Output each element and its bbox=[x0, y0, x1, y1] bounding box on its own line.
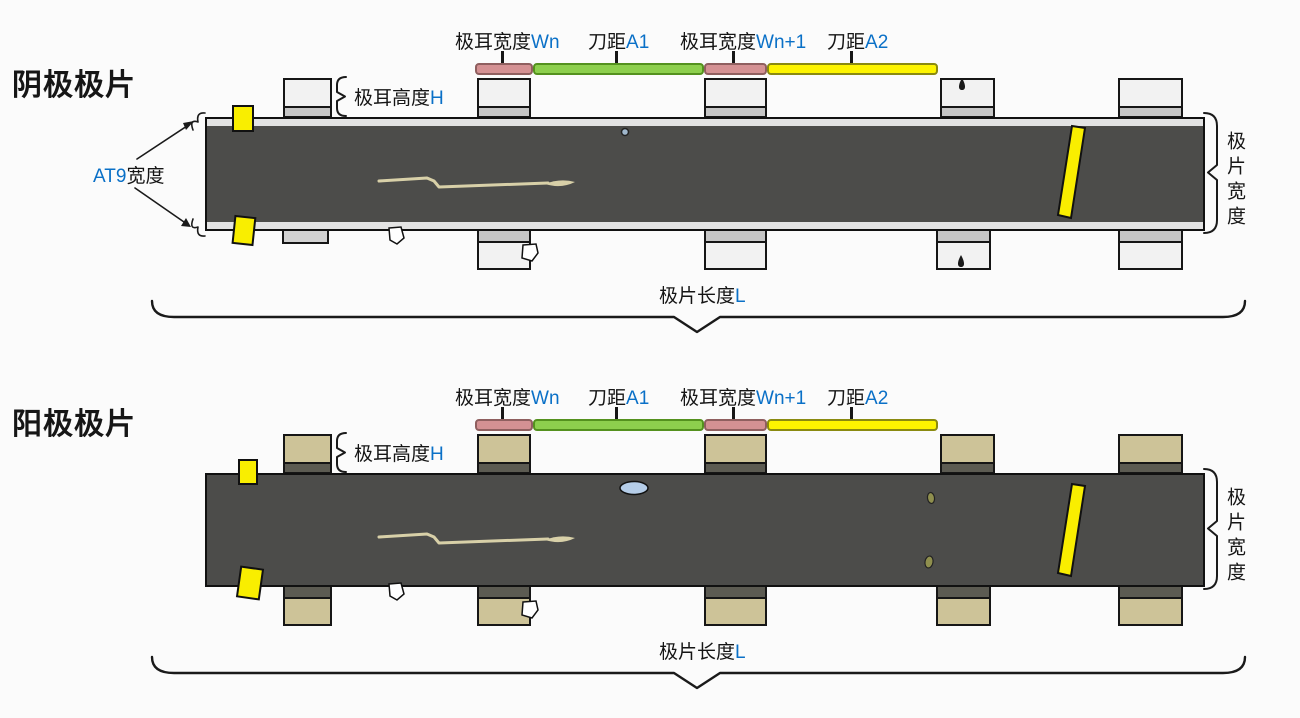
tab-width-n-text: 极耳宽度 bbox=[455, 32, 531, 53]
knife-gap-2-text: 刀距 bbox=[827, 32, 865, 53]
tab-width-n-label: 极耳宽度Wn bbox=[455, 27, 560, 54]
bottom-tab bbox=[477, 229, 531, 270]
top-tab bbox=[283, 434, 332, 474]
bottom-tab-stub bbox=[282, 229, 329, 244]
tab-width-n-var: Wn bbox=[531, 32, 560, 53]
tab-body bbox=[936, 597, 991, 626]
knife-gap-2-label: 刀距A2 bbox=[827, 383, 888, 410]
sheet-width-bracket bbox=[1204, 113, 1217, 233]
tab-height-label: 极耳高度H bbox=[354, 83, 444, 110]
tab-height-text: 极耳高度 bbox=[354, 444, 430, 465]
tab-body bbox=[283, 78, 332, 108]
at9-arrow-lower bbox=[135, 188, 184, 222]
tab-body bbox=[1118, 434, 1183, 464]
knife-gap-1-label: 刀距A1 bbox=[588, 27, 649, 54]
tab-body bbox=[1118, 241, 1183, 270]
tab-body bbox=[704, 434, 767, 464]
corner-hook-icon bbox=[192, 219, 205, 236]
tab-width-n1-label: 极耳宽度Wn+1 bbox=[680, 27, 806, 54]
tab-height-var: H bbox=[430, 88, 444, 109]
top-tab bbox=[704, 78, 767, 118]
sheet-width-label: 极片宽度 bbox=[1221, 487, 1248, 587]
cathode-title: 阴极极片 bbox=[12, 60, 136, 104]
tab-width-n-var: Wn bbox=[531, 388, 560, 409]
measure-tick bbox=[501, 407, 504, 419]
sheet-length-label: 极片长度L bbox=[659, 637, 746, 664]
anode-diagram: 阳极极片 极耳宽度Wn 刀距A1 极耳宽度Wn+1 刀距A2 bbox=[0, 356, 1300, 718]
knife-gap-a1-bar bbox=[533, 419, 704, 431]
tab-width-bar bbox=[475, 63, 533, 75]
measure-tick bbox=[615, 407, 618, 419]
bottom-tab bbox=[936, 585, 991, 626]
knife-gap-1-text: 刀距 bbox=[588, 32, 626, 53]
at9-width-text: 宽度 bbox=[126, 166, 164, 187]
tab-body bbox=[936, 241, 991, 270]
tab-height-bracket bbox=[337, 77, 346, 116]
arrowhead-icon bbox=[183, 121, 194, 130]
bottom-tab bbox=[283, 585, 332, 626]
top-tab bbox=[704, 434, 767, 474]
bottom-tab bbox=[936, 229, 991, 270]
tab-body bbox=[704, 597, 767, 626]
knife-gap-a2-bar bbox=[767, 63, 938, 75]
knife-gap-1-text: 刀距 bbox=[588, 388, 626, 409]
knife-gap-a1-bar bbox=[533, 63, 704, 75]
measure-tick bbox=[501, 51, 504, 63]
tab-height-var: H bbox=[430, 444, 444, 465]
corner-hook-icon bbox=[192, 113, 205, 130]
bottom-tab bbox=[477, 585, 531, 626]
sheet-length-var: L bbox=[735, 286, 746, 307]
measure-tick bbox=[732, 51, 735, 63]
measure-tick bbox=[850, 51, 853, 63]
sheet-length-text: 极片长度 bbox=[659, 286, 735, 307]
sheet-width-bracket bbox=[1204, 469, 1217, 589]
tab-width-n1-var: Wn+1 bbox=[756, 32, 806, 53]
bottom-tab bbox=[1118, 585, 1183, 626]
top-tab bbox=[940, 78, 995, 118]
knife-gap-2-var: A2 bbox=[865, 388, 888, 409]
top-tab bbox=[1118, 78, 1183, 118]
electrode-strip bbox=[205, 117, 1205, 231]
at9-arrow-upper bbox=[137, 126, 187, 159]
tab-width-n1-text: 极耳宽度 bbox=[680, 32, 756, 53]
tab-width-bar bbox=[475, 419, 533, 431]
tab-width-n1-text: 极耳宽度 bbox=[680, 388, 756, 409]
knife-gap-a2-bar bbox=[767, 419, 938, 431]
tab-body bbox=[1118, 78, 1183, 108]
tab-body bbox=[477, 78, 531, 108]
tab-width-n1-label: 极耳宽度Wn+1 bbox=[680, 383, 806, 410]
bottom-tab bbox=[704, 585, 767, 626]
top-tab bbox=[940, 434, 995, 474]
top-tab bbox=[477, 434, 531, 474]
knife-gap-2-var: A2 bbox=[865, 32, 888, 53]
tab-body bbox=[704, 241, 767, 270]
tab-body bbox=[283, 597, 332, 626]
tab-body bbox=[1118, 597, 1183, 626]
top-tab bbox=[477, 78, 531, 118]
tab-body bbox=[477, 241, 531, 270]
knife-gap-2-text: 刀距 bbox=[827, 388, 865, 409]
at9-width-label: AT9宽度 bbox=[93, 161, 164, 188]
foil-edge-top bbox=[207, 119, 1203, 126]
tab-body bbox=[940, 434, 995, 464]
tab-body bbox=[477, 434, 531, 464]
tab-body bbox=[283, 434, 332, 464]
tab-height-text: 极耳高度 bbox=[354, 88, 430, 109]
tab-body bbox=[704, 78, 767, 108]
measure-tick bbox=[850, 407, 853, 419]
tab-width-bar-2 bbox=[704, 419, 767, 431]
top-tab bbox=[283, 78, 332, 118]
tab-width-n-label: 极耳宽度Wn bbox=[455, 383, 560, 410]
bottom-tab bbox=[1118, 229, 1183, 270]
anode-title: 阳极极片 bbox=[12, 399, 136, 443]
sheet-length-label: 极片长度L bbox=[659, 281, 746, 308]
at9-width-var: AT9 bbox=[93, 166, 126, 187]
tab-width-n1-var: Wn+1 bbox=[756, 388, 806, 409]
sheet-width-label: 极片宽度 bbox=[1221, 131, 1248, 231]
measure-tick bbox=[615, 51, 618, 63]
tab-body bbox=[940, 78, 995, 108]
tab-height-label: 极耳高度H bbox=[354, 439, 444, 466]
top-tab bbox=[1118, 434, 1183, 474]
tab-width-bar-2 bbox=[704, 63, 767, 75]
knife-gap-1-var: A1 bbox=[626, 32, 649, 53]
measure-tick bbox=[732, 407, 735, 419]
foil-edge-bottom bbox=[207, 222, 1203, 229]
electrode-strip bbox=[205, 473, 1205, 587]
electrode-sheet-diagram: 阴极极片 极耳宽度Wn 刀距A1 极耳宽度Wn+1 刀距A2 bbox=[0, 0, 1300, 718]
bottom-tab bbox=[704, 229, 767, 270]
knife-gap-1-var: A1 bbox=[626, 388, 649, 409]
tab-height-bracket bbox=[337, 433, 346, 472]
arrowhead-icon bbox=[181, 218, 191, 227]
cathode-diagram: 阴极极片 极耳宽度Wn 刀距A1 极耳宽度Wn+1 刀距A2 bbox=[0, 0, 1300, 362]
sheet-length-var: L bbox=[735, 642, 746, 663]
knife-gap-2-label: 刀距A2 bbox=[827, 27, 888, 54]
tab-body bbox=[477, 597, 531, 626]
sheet-length-text: 极片长度 bbox=[659, 642, 735, 663]
knife-gap-1-label: 刀距A1 bbox=[588, 383, 649, 410]
tab-width-n-text: 极耳宽度 bbox=[455, 388, 531, 409]
